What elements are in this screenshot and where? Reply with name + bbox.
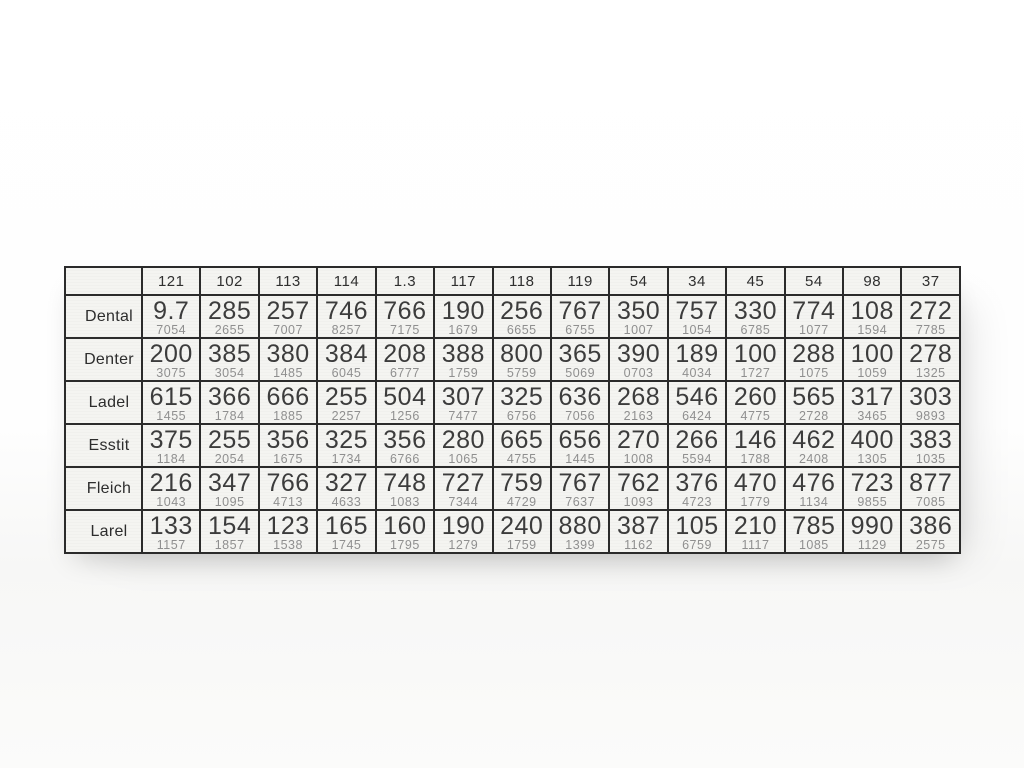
cell-main-value: 256 <box>494 298 550 324</box>
cell-sub-value: 5069 <box>552 367 608 380</box>
table-cell: 4761134 <box>785 467 843 510</box>
table-cell: 6654755 <box>493 424 551 467</box>
cell-main-value: 800 <box>494 341 550 367</box>
cell-sub-value: 1305 <box>844 453 900 466</box>
column-header: 1.3 <box>376 267 434 295</box>
cell-sub-value: 6755 <box>552 324 608 337</box>
cell-main-value: 350 <box>610 298 666 324</box>
table-head: 1211021131141.3117118119543445549837 <box>65 267 960 295</box>
corner-cell <box>65 267 142 295</box>
table-cell: 1541857 <box>200 510 258 553</box>
cell-sub-value: 6759 <box>669 539 725 552</box>
cell-main-value: 380 <box>260 341 316 367</box>
cell-main-value: 774 <box>786 298 842 324</box>
cell-sub-value: 1157 <box>143 539 199 552</box>
cell-sub-value: 7175 <box>377 324 433 337</box>
cell-main-value: 257 <box>260 298 316 324</box>
table-cell: 8777085 <box>901 467 960 510</box>
cell-main-value: 666 <box>260 384 316 410</box>
table-cell: 9901129 <box>843 510 901 553</box>
cell-sub-value: 1734 <box>318 453 374 466</box>
cell-sub-value: 1445 <box>552 453 608 466</box>
cell-main-value: 366 <box>201 384 257 410</box>
table-cell: 3751184 <box>142 424 200 467</box>
cell-sub-value: 9893 <box>902 410 959 423</box>
table-cell: 7594729 <box>493 467 551 510</box>
row-label: Ladel <box>65 381 142 424</box>
table-cell: 3871162 <box>609 510 667 553</box>
cell-sub-value: 2408 <box>786 453 842 466</box>
cell-sub-value: 4034 <box>669 367 725 380</box>
table-cell: 1651745 <box>317 510 375 553</box>
cell-sub-value: 3075 <box>143 367 199 380</box>
table-cell: 7677637 <box>551 467 609 510</box>
cell-main-value: 268 <box>610 384 666 410</box>
cell-main-value: 285 <box>201 298 257 324</box>
cell-sub-value: 5594 <box>669 453 725 466</box>
table-cell: 6151455 <box>142 381 200 424</box>
data-table: 1211021131141.3117118119543445549837 Den… <box>64 266 961 554</box>
cell-main-value: 325 <box>494 384 550 410</box>
table-cell: 4001305 <box>843 424 901 467</box>
cell-main-value: 383 <box>902 427 959 453</box>
cell-main-value: 365 <box>552 341 608 367</box>
table-row: Dental9.77054285265525770077468257766717… <box>65 295 960 338</box>
cell-main-value: 146 <box>727 427 783 453</box>
cell-sub-value: 1043 <box>143 496 199 509</box>
cell-sub-value: 1675 <box>260 453 316 466</box>
table-cell: 2161043 <box>142 467 200 510</box>
cell-sub-value: 4755 <box>494 453 550 466</box>
cell-main-value: 767 <box>552 470 608 496</box>
cell-main-value: 190 <box>435 513 491 539</box>
table-cell: 2552054 <box>200 424 258 467</box>
cell-sub-value: 4633 <box>318 496 374 509</box>
cell-main-value: 388 <box>435 341 491 367</box>
cell-sub-value: 1085 <box>786 539 842 552</box>
cell-main-value: 615 <box>143 384 199 410</box>
table-cell: 3274633 <box>317 467 375 510</box>
table-cell: 1901679 <box>434 295 492 338</box>
cell-main-value: 165 <box>318 513 374 539</box>
cell-main-value: 216 <box>143 470 199 496</box>
cell-main-value: 356 <box>260 427 316 453</box>
header-row: 1211021131141.3117118119543445549837 <box>65 267 960 295</box>
table-cell: 2881075 <box>785 338 843 381</box>
cell-main-value: 288 <box>786 341 842 367</box>
table-cell: 1461788 <box>726 424 784 467</box>
cell-sub-value: 1117 <box>727 539 783 552</box>
table-cell: 6561445 <box>551 424 609 467</box>
cell-sub-value: 1184 <box>143 453 199 466</box>
column-header: 121 <box>142 267 200 295</box>
cell-sub-value: 1857 <box>201 539 257 552</box>
cell-main-value: 880 <box>552 513 608 539</box>
cell-sub-value: 6777 <box>377 367 433 380</box>
table-cell: 2401759 <box>493 510 551 553</box>
cell-main-value: 160 <box>377 513 433 539</box>
cell-main-value: 9.7 <box>143 298 199 324</box>
cell-sub-value: 1784 <box>201 410 257 423</box>
table-cell: 7741077 <box>785 295 843 338</box>
page-background: { "colors": { "grid_border": "#2b2b2b", … <box>0 0 1024 768</box>
cell-sub-value: 1679 <box>435 324 491 337</box>
table-cell: 2577007 <box>259 295 317 338</box>
cell-sub-value: 6766 <box>377 453 433 466</box>
table-cell: 3566766 <box>376 424 434 467</box>
table-cell: 1001059 <box>843 338 901 381</box>
cell-sub-value: 1727 <box>727 367 783 380</box>
cell-main-value: 123 <box>260 513 316 539</box>
cell-sub-value: 1759 <box>494 539 550 552</box>
cell-main-value: 762 <box>610 470 666 496</box>
cell-main-value: 470 <box>727 470 783 496</box>
table-cell: 6661885 <box>259 381 317 424</box>
table-cell: 3764723 <box>668 467 726 510</box>
cell-main-value: 376 <box>669 470 725 496</box>
table-cell: 4622408 <box>785 424 843 467</box>
table-cell: 3661784 <box>200 381 258 424</box>
table-cell: 3256756 <box>493 381 551 424</box>
table-row: Fleich2161043347109576647133274633748108… <box>65 467 960 510</box>
table-cell: 3900703 <box>609 338 667 381</box>
cell-sub-value: 7056 <box>552 410 608 423</box>
cell-main-value: 766 <box>377 298 433 324</box>
table-row: Denter2003075385305438014853846045208677… <box>65 338 960 381</box>
cell-sub-value: 1779 <box>727 496 783 509</box>
cell-main-value: 748 <box>377 470 433 496</box>
table-cell: 7621093 <box>609 467 667 510</box>
cell-sub-value: 1162 <box>610 539 666 552</box>
cell-main-value: 390 <box>610 341 666 367</box>
table-cell: 2801065 <box>434 424 492 467</box>
table-cell: 1056759 <box>668 510 726 553</box>
cell-main-value: 325 <box>318 427 374 453</box>
table-cell: 2604775 <box>726 381 784 424</box>
cell-sub-value: 1538 <box>260 539 316 552</box>
table-cell: 3039893 <box>901 381 960 424</box>
cell-sub-value: 7007 <box>260 324 316 337</box>
cell-sub-value: 5759 <box>494 367 550 380</box>
cell-sub-value: 4729 <box>494 496 550 509</box>
table-cell: 7851085 <box>785 510 843 553</box>
column-header: 113 <box>259 267 317 295</box>
cell-sub-value: 6424 <box>669 410 725 423</box>
cell-sub-value: 6785 <box>727 324 783 337</box>
cell-main-value: 260 <box>727 384 783 410</box>
table-cell: 5652728 <box>785 381 843 424</box>
row-label: Denter <box>65 338 142 381</box>
table-cell: 2781325 <box>901 338 960 381</box>
cell-main-value: 330 <box>727 298 783 324</box>
column-header: 54 <box>785 267 843 295</box>
table-cell: 7664713 <box>259 467 317 510</box>
column-header: 98 <box>843 267 901 295</box>
row-label: Dental <box>65 295 142 338</box>
table-cell: 1081594 <box>843 295 901 338</box>
table-cell: 7239855 <box>843 467 901 510</box>
cell-sub-value: 1256 <box>377 410 433 423</box>
cell-sub-value: 6655 <box>494 324 550 337</box>
cell-main-value: 727 <box>435 470 491 496</box>
table-cell: 3655069 <box>551 338 609 381</box>
table-cell: 2701008 <box>609 424 667 467</box>
table-cell: 3077477 <box>434 381 492 424</box>
column-header: 118 <box>493 267 551 295</box>
cell-sub-value: 1594 <box>844 324 900 337</box>
cell-main-value: 746 <box>318 298 374 324</box>
cell-sub-value: 1455 <box>143 410 199 423</box>
table-cell: 2727785 <box>901 295 960 338</box>
cell-sub-value: 1129 <box>844 539 900 552</box>
table-cell: 3173465 <box>843 381 901 424</box>
cell-sub-value: 8257 <box>318 324 374 337</box>
cell-sub-value: 2163 <box>610 410 666 423</box>
cell-sub-value: 1795 <box>377 539 433 552</box>
cell-main-value: 877 <box>902 470 959 496</box>
cell-main-value: 307 <box>435 384 491 410</box>
table-row: Ladel61514553661784666188525522575041256… <box>65 381 960 424</box>
table-cell: 1901279 <box>434 510 492 553</box>
table-cell: 2682163 <box>609 381 667 424</box>
cell-sub-value: 2054 <box>201 453 257 466</box>
cell-sub-value: 6045 <box>318 367 374 380</box>
cell-main-value: 384 <box>318 341 374 367</box>
cell-sub-value: 2728 <box>786 410 842 423</box>
cell-main-value: 133 <box>143 513 199 539</box>
cell-main-value: 270 <box>610 427 666 453</box>
column-header: 34 <box>668 267 726 295</box>
cell-sub-value: 1759 <box>435 367 491 380</box>
cell-sub-value: 4775 <box>727 410 783 423</box>
table-cell: 7277344 <box>434 467 492 510</box>
cell-sub-value: 2575 <box>902 539 959 552</box>
column-header: 114 <box>317 267 375 295</box>
table-row: Larel13311571541857123153816517451601795… <box>65 510 960 553</box>
table-cell: 2665594 <box>668 424 726 467</box>
column-header: 119 <box>551 267 609 295</box>
cell-main-value: 280 <box>435 427 491 453</box>
cell-sub-value: 7085 <box>902 496 959 509</box>
table-cell: 7468257 <box>317 295 375 338</box>
table-cell: 5466424 <box>668 381 726 424</box>
cell-main-value: 785 <box>786 513 842 539</box>
cell-sub-value: 1065 <box>435 453 491 466</box>
table-cell: 3561675 <box>259 424 317 467</box>
cell-main-value: 400 <box>844 427 900 453</box>
cell-main-value: 476 <box>786 470 842 496</box>
cell-main-value: 656 <box>552 427 608 453</box>
cell-sub-value: 1095 <box>201 496 257 509</box>
cell-sub-value: 1054 <box>669 324 725 337</box>
cell-main-value: 636 <box>552 384 608 410</box>
table-cell: 8005759 <box>493 338 551 381</box>
cell-sub-value: 9855 <box>844 496 900 509</box>
row-label: Esstit <box>65 424 142 467</box>
cell-main-value: 317 <box>844 384 900 410</box>
cell-sub-value: 2655 <box>201 324 257 337</box>
table-cell: 1894034 <box>668 338 726 381</box>
cell-sub-value: 3465 <box>844 410 900 423</box>
cell-main-value: 504 <box>377 384 433 410</box>
table-cell: 2552257 <box>317 381 375 424</box>
cell-sub-value: 1083 <box>377 496 433 509</box>
cell-main-value: 210 <box>727 513 783 539</box>
cell-sub-value: 4723 <box>669 496 725 509</box>
cell-sub-value: 4713 <box>260 496 316 509</box>
cell-sub-value: 7477 <box>435 410 491 423</box>
table-cell: 5041256 <box>376 381 434 424</box>
cell-main-value: 100 <box>844 341 900 367</box>
table-cell: 3251734 <box>317 424 375 467</box>
table-cell: 2101117 <box>726 510 784 553</box>
cell-main-value: 757 <box>669 298 725 324</box>
cell-sub-value: 1325 <box>902 367 959 380</box>
cell-main-value: 565 <box>786 384 842 410</box>
table-cell: 1601795 <box>376 510 434 553</box>
cell-main-value: 356 <box>377 427 433 453</box>
row-label: Larel <box>65 510 142 553</box>
column-header: 117 <box>434 267 492 295</box>
cell-main-value: 105 <box>669 513 725 539</box>
column-header: 45 <box>726 267 784 295</box>
table-cell: 3881759 <box>434 338 492 381</box>
data-table-container: 1211021131141.3117118119543445549837 Den… <box>64 266 961 552</box>
cell-sub-value: 1008 <box>610 453 666 466</box>
table-cell: 3501007 <box>609 295 667 338</box>
cell-main-value: 462 <box>786 427 842 453</box>
table-cell: 3862575 <box>901 510 960 553</box>
table-cell: 7481083 <box>376 467 434 510</box>
cell-main-value: 240 <box>494 513 550 539</box>
cell-main-value: 767 <box>552 298 608 324</box>
column-header: 37 <box>901 267 960 295</box>
table-cell: 3471095 <box>200 467 258 510</box>
column-header: 54 <box>609 267 667 295</box>
table-cell: 3846045 <box>317 338 375 381</box>
table-cell: 1001727 <box>726 338 784 381</box>
table-cell: 4701779 <box>726 467 784 510</box>
row-label: Fleich <box>65 467 142 510</box>
cell-main-value: 100 <box>727 341 783 367</box>
cell-main-value: 272 <box>902 298 959 324</box>
cell-sub-value: 2257 <box>318 410 374 423</box>
table-cell: 1331157 <box>142 510 200 553</box>
cell-sub-value: 7344 <box>435 496 491 509</box>
table-cell: 1231538 <box>259 510 317 553</box>
cell-sub-value: 0703 <box>610 367 666 380</box>
table-row: Esstit3751184255205435616753251734356676… <box>65 424 960 467</box>
cell-sub-value: 1007 <box>610 324 666 337</box>
cell-sub-value: 1885 <box>260 410 316 423</box>
cell-sub-value: 1399 <box>552 539 608 552</box>
cell-sub-value: 6756 <box>494 410 550 423</box>
cell-sub-value: 3054 <box>201 367 257 380</box>
cell-sub-value: 1059 <box>844 367 900 380</box>
cell-main-value: 347 <box>201 470 257 496</box>
cell-main-value: 327 <box>318 470 374 496</box>
cell-main-value: 990 <box>844 513 900 539</box>
column-header: 102 <box>200 267 258 295</box>
table-cell: 7676755 <box>551 295 609 338</box>
table-cell: 2086777 <box>376 338 434 381</box>
cell-main-value: 723 <box>844 470 900 496</box>
cell-sub-value: 7785 <box>902 324 959 337</box>
cell-sub-value: 1134 <box>786 496 842 509</box>
cell-sub-value: 1093 <box>610 496 666 509</box>
cell-main-value: 386 <box>902 513 959 539</box>
cell-main-value: 189 <box>669 341 725 367</box>
table-cell: 6367056 <box>551 381 609 424</box>
cell-main-value: 154 <box>201 513 257 539</box>
table-cell: 2003075 <box>142 338 200 381</box>
table-cell: 7571054 <box>668 295 726 338</box>
cell-main-value: 375 <box>143 427 199 453</box>
table-cell: 7667175 <box>376 295 434 338</box>
cell-main-value: 108 <box>844 298 900 324</box>
cell-main-value: 200 <box>143 341 199 367</box>
cell-sub-value: 1485 <box>260 367 316 380</box>
cell-sub-value: 7054 <box>143 324 199 337</box>
table-cell: 3853054 <box>200 338 258 381</box>
cell-sub-value: 1035 <box>902 453 959 466</box>
cell-main-value: 255 <box>318 384 374 410</box>
cell-main-value: 759 <box>494 470 550 496</box>
cell-sub-value: 1788 <box>727 453 783 466</box>
table-cell: 3306785 <box>726 295 784 338</box>
table-cell: 2566655 <box>493 295 551 338</box>
cell-sub-value: 1279 <box>435 539 491 552</box>
cell-main-value: 190 <box>435 298 491 324</box>
table-cell: 8801399 <box>551 510 609 553</box>
cell-main-value: 208 <box>377 341 433 367</box>
cell-sub-value: 1077 <box>786 324 842 337</box>
cell-main-value: 766 <box>260 470 316 496</box>
table-body: Dental9.77054285265525770077468257766717… <box>65 295 960 553</box>
cell-main-value: 385 <box>201 341 257 367</box>
cell-main-value: 303 <box>902 384 959 410</box>
cell-sub-value: 7637 <box>552 496 608 509</box>
table-cell: 2852655 <box>200 295 258 338</box>
cell-sub-value: 1745 <box>318 539 374 552</box>
cell-main-value: 266 <box>669 427 725 453</box>
cell-main-value: 546 <box>669 384 725 410</box>
cell-main-value: 387 <box>610 513 666 539</box>
table-cell: 9.77054 <box>142 295 200 338</box>
table-cell: 3831035 <box>901 424 960 467</box>
table-cell: 3801485 <box>259 338 317 381</box>
cell-sub-value: 1075 <box>786 367 842 380</box>
cell-main-value: 665 <box>494 427 550 453</box>
cell-main-value: 255 <box>201 427 257 453</box>
cell-main-value: 278 <box>902 341 959 367</box>
